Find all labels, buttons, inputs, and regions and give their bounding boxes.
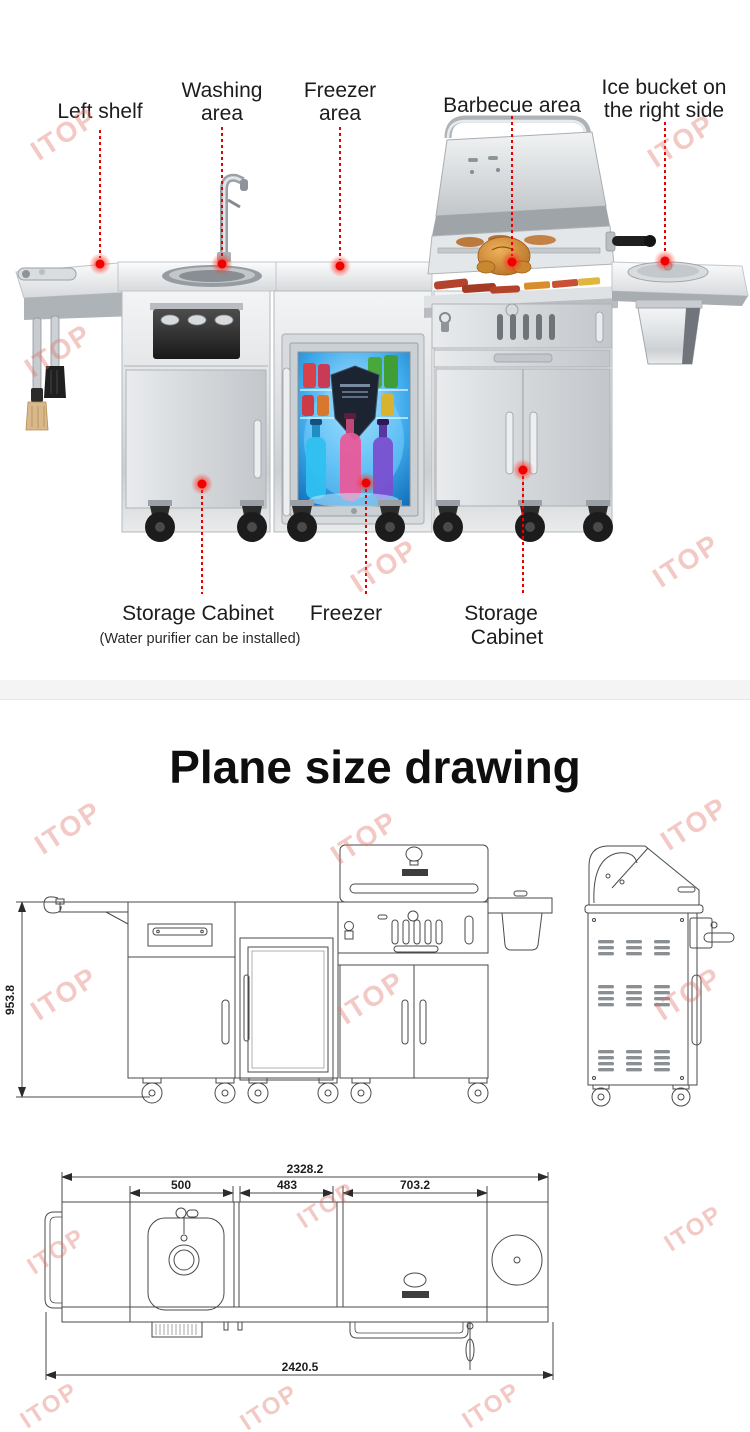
label-barbecue-area: Barbecue area [443, 94, 581, 117]
label-ice-bucket-line2: the right side [604, 99, 724, 122]
ice-bucket [636, 300, 702, 364]
product-detail-page: Left shelf Washing area Freezer area Bar… [0, 0, 750, 1432]
rotisserie-crank-handle [606, 232, 656, 251]
front-elevation-drawing [16, 845, 552, 1103]
section-divider [0, 680, 750, 700]
barbecue-grill [424, 119, 656, 532]
plan-view-drawing [45, 1172, 553, 1380]
technical-drawings: 953.8 2328.2 500 483 703.2 2420.5 [0, 820, 750, 1420]
label-washing-line2: area [201, 102, 243, 125]
dim-height: 953.8 [3, 985, 17, 1015]
elevation-casters [142, 1078, 488, 1103]
label-freezer-area-line2: area [319, 102, 361, 125]
freezer-module [274, 262, 432, 532]
label-water-purifier-note: (Water purifier can be installed) [100, 631, 301, 647]
dim-segment-483: 483 [277, 1178, 297, 1192]
dim-overall-bottom: 2420.5 [282, 1360, 319, 1374]
right-shelf [612, 262, 748, 364]
side-vent-slats [598, 940, 670, 1071]
dim-segment-500: 500 [171, 1178, 191, 1192]
label-storage-cabinet-right-line2: Cabinet [471, 626, 544, 649]
label-storage-cabinet-left: Storage Cabinet [122, 602, 274, 625]
label-freezer-area-line1: Freezer [304, 79, 376, 102]
label-storage-cabinet-right-line1: Storage [464, 602, 538, 625]
dim-segment-703: 703.2 [400, 1178, 430, 1192]
label-ice-bucket-line1: Ice bucket on [602, 76, 727, 99]
product-photo-section: Left shelf Washing area Freezer area Bar… [0, 0, 750, 660]
label-left-shelf: Left shelf [57, 100, 142, 123]
side-view-drawing [585, 846, 734, 1106]
dim-overall-top: 2328.2 [287, 1162, 324, 1176]
label-freezer-bottom: Freezer [310, 602, 382, 625]
hanging-utensils [26, 316, 66, 430]
plane-size-drawing-title: Plane size drawing [0, 740, 750, 794]
label-washing-line1: Washing [182, 79, 263, 102]
